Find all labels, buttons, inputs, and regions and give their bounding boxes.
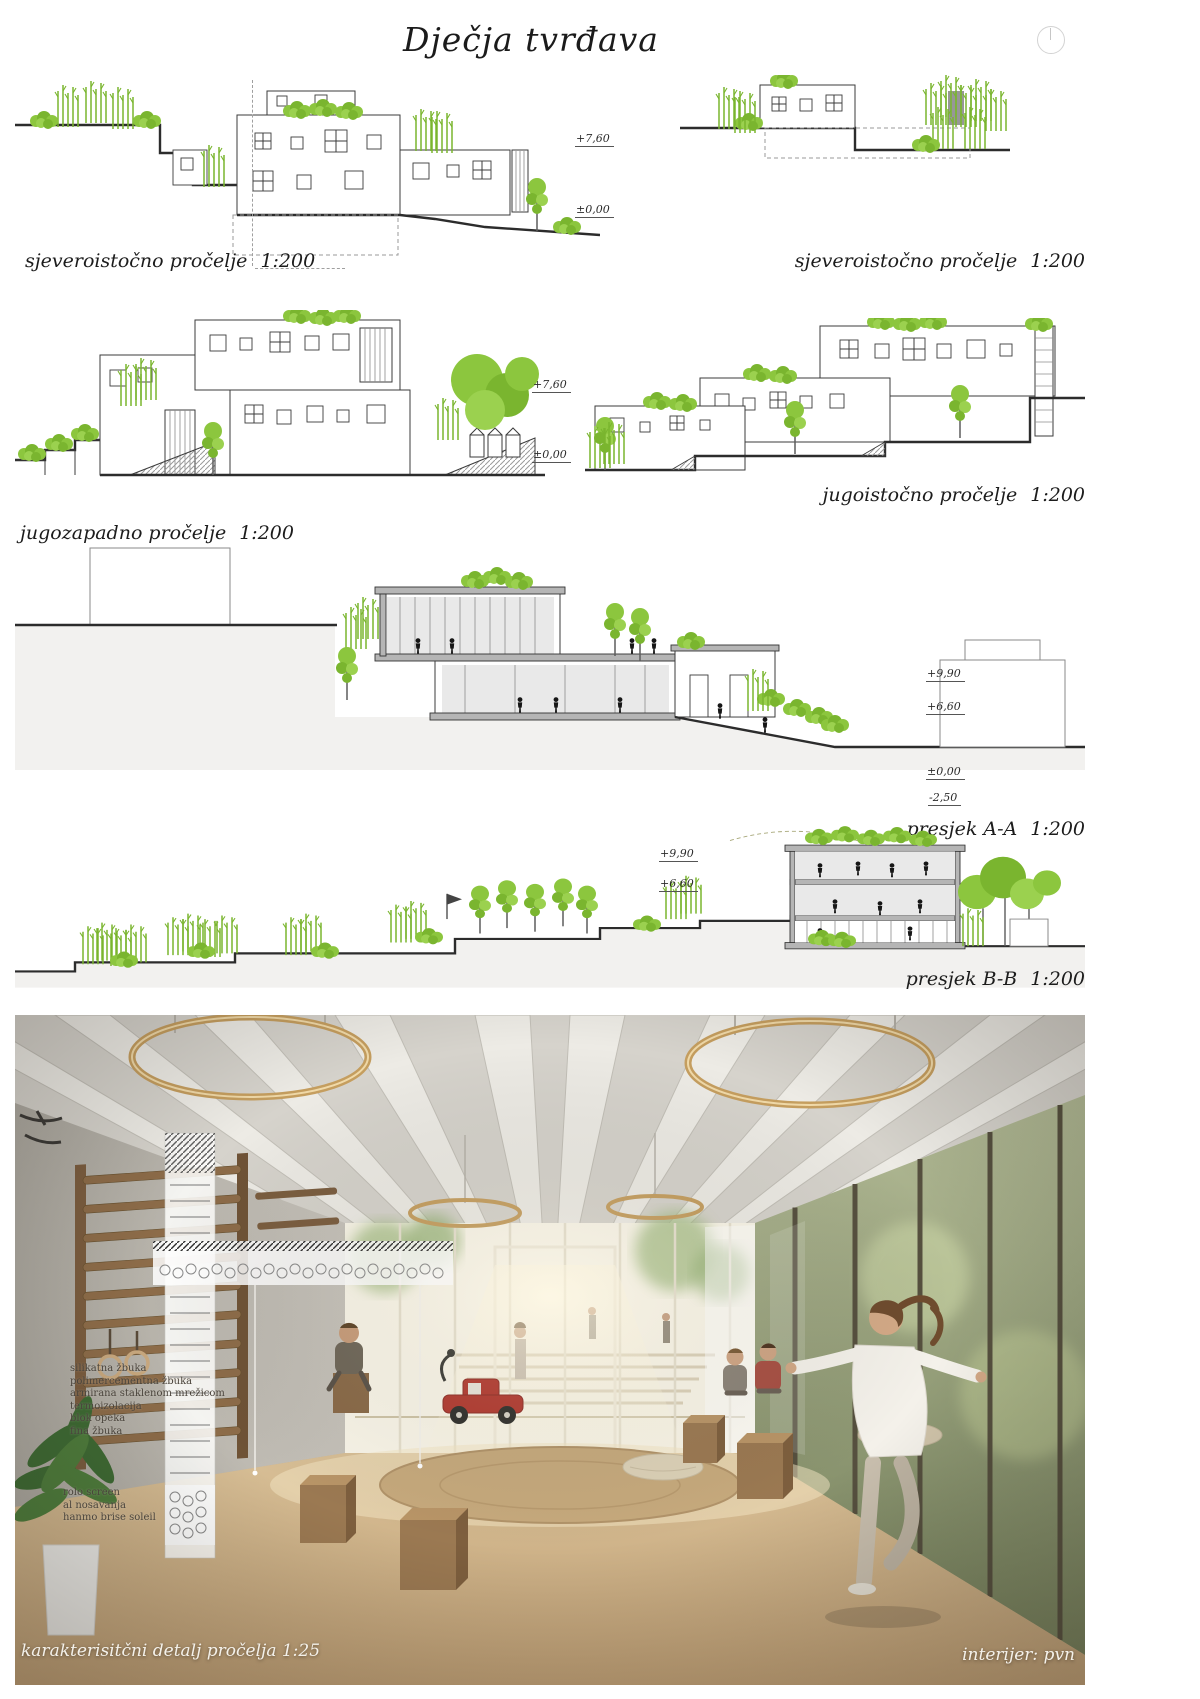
north-indicator-icon <box>1037 26 1065 54</box>
caption-ne-left: sjeveroistočno pročelje1:200 <box>25 250 315 272</box>
facade-scale: 1:200 <box>1030 484 1085 506</box>
note-line: fina žbuka <box>70 1426 225 1439</box>
note-line: silikatna žbuka <box>70 1363 225 1376</box>
caption-interior: interijer: pvn <box>962 1645 1075 1665</box>
note-line: termoizolacija <box>70 1401 225 1414</box>
elevation-southeast <box>585 318 1085 478</box>
level-marker: ±0,00 <box>532 449 571 463</box>
facade-layer-notes: silikatna žbuka polimercementna žbuka ar… <box>70 1363 225 1438</box>
shading-notes: rolo screen al nosavanja hanmo brise sol… <box>63 1487 156 1525</box>
note-line: armirana staklenom mrežicom <box>70 1388 225 1401</box>
facade-name: sjeveroistočno pročelje <box>795 250 1017 272</box>
level-marker: +7,60 <box>575 133 614 147</box>
facade-name: sjeveroistočno pročelje <box>25 250 247 272</box>
level-marker: +6,60 <box>926 701 965 715</box>
elevation-northeast-left <box>15 75 600 265</box>
interior-render-scene <box>15 1015 1085 1685</box>
note-line: rolo screen <box>63 1487 156 1500</box>
note-line: polimercementna žbuka <box>70 1376 225 1389</box>
level-marker: ±0,00 <box>575 204 614 218</box>
level-marker: +6,60 <box>659 878 698 892</box>
caption-detail: karakterisitčni detalj pročelja 1:25 <box>21 1641 320 1661</box>
facade-scale: 1:200 <box>260 250 315 272</box>
page-title: Dječja tvrđava <box>0 20 1062 59</box>
facade-scale: 1:200 <box>239 522 294 544</box>
caption-ne-right: sjeveroistočno pročelje1:200 <box>795 250 1085 272</box>
level-marker: +7,60 <box>532 379 571 393</box>
section-a-a <box>15 545 1085 845</box>
facade-scale: 1:200 <box>1030 250 1085 272</box>
level-marker: ±0,00 <box>926 766 965 780</box>
section-name: presjek B-B <box>906 968 1018 990</box>
note-line: hanmo brise soleil <box>63 1512 156 1525</box>
level-marker: -2,50 <box>928 792 961 806</box>
note-line: al nosavanja <box>63 1500 156 1513</box>
section-line-vertical <box>252 80 253 266</box>
caption-se: jugoistočno pročelje1:200 <box>822 484 1085 506</box>
caption-sw: jugozapadno pročelje1:200 <box>20 522 294 544</box>
presentation-board: Dječja tvrđava +7,60 ±0,00 <box>0 0 1200 1699</box>
facade-name: jugozapadno pročelje <box>20 522 226 544</box>
elevation-northeast-right <box>680 75 1085 170</box>
note-line: blok opeka <box>70 1413 225 1426</box>
interior-render: silikatna žbuka polimercementna žbuka ar… <box>15 1015 1085 1685</box>
level-marker: +9,90 <box>659 848 698 862</box>
section-scale: 1:200 <box>1030 968 1085 990</box>
elevation-southwest <box>15 310 560 480</box>
caption-section-b: presjek B-B1:200 <box>906 968 1085 990</box>
facade-name: jugoistočno pročelje <box>822 484 1017 506</box>
vignette <box>15 1015 1085 1685</box>
level-marker: +9,90 <box>926 668 965 682</box>
